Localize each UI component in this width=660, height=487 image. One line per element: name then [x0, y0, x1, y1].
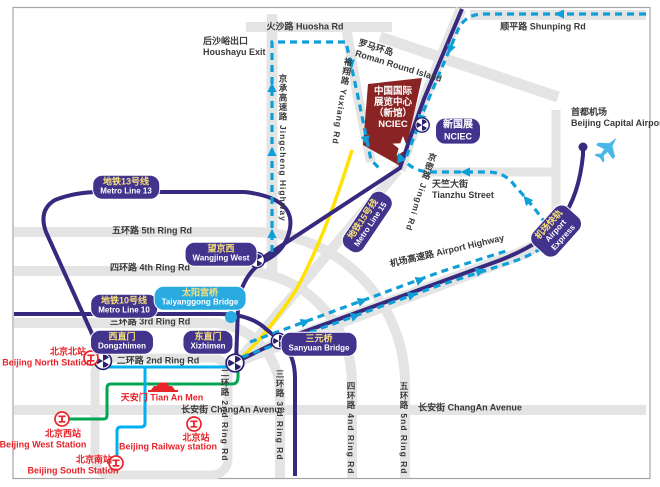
- railway-station-icon-west: [55, 412, 69, 426]
- capital-airport-en: Beijing Capital Airport: [571, 118, 660, 129]
- ring5-v-label: 五环路 5nd Ring Rd: [398, 382, 410, 475]
- venue-line1: 中国国际: [374, 86, 412, 97]
- nciec-station-zh: 新国展: [443, 120, 473, 132]
- ring2-v-label: 二环路 2nd Ring Rd: [219, 369, 231, 462]
- badge-metro-line-10: 地铁10号线 Metro Line 10: [90, 294, 158, 319]
- tiananmen-label: 天安门 Tian An Men: [121, 393, 204, 404]
- houshayu-exit-zh: 后沙峪出口: [203, 36, 266, 47]
- taiyanggong-en: Taiyanggong Bridge: [162, 298, 239, 307]
- ring3-v-label: 三环路 3rd Ring Rd: [274, 369, 286, 460]
- airplane-icon: [590, 131, 625, 166]
- dongzhimen-zh: 西直门: [98, 332, 146, 342]
- taiyanggong-zh: 太阳宫桥: [162, 288, 239, 298]
- tianzhu-street-label: 天竺大街 Tianzhu Street: [432, 179, 494, 201]
- airport-terminus-dot: [579, 143, 588, 152]
- capital-airport-label: 首都机场 Beijing Capital Airport: [571, 107, 660, 129]
- jingcheng-highway-label: 京承高速路 Jingcheng Highway: [277, 74, 289, 222]
- venue-line2: 展览中心: [374, 97, 412, 108]
- route-arrow-icon: [300, 316, 312, 328]
- wangjing-west-zh: 望京西: [193, 244, 250, 254]
- line10-en: Metro Line 10: [98, 306, 150, 315]
- ring2-h-label: 二环路 2nd Ring Rd: [117, 356, 200, 367]
- sanyuan-zh: 三元桥: [289, 334, 350, 344]
- huosha-rd-label: 火沙路 Huosha Rd: [266, 22, 343, 33]
- tianzhu-en: Tianzhu Street: [432, 190, 494, 201]
- changan-avenue-west-label: 长安街 ChangAn Avenue: [181, 405, 285, 416]
- badge-metro-line-13: 地铁13号线 Metro Line 13: [92, 175, 160, 200]
- ring5-h-label: 五环路 5th Ring Rd: [112, 226, 192, 237]
- wangjing-west-en: Wangjing West: [193, 254, 250, 263]
- badge-dongzhimen: 西直门 Dongzhimen: [90, 330, 154, 355]
- tianzhu-zh: 天竺大街: [432, 179, 494, 190]
- beijing-railway-en: Beijing Railway station: [119, 442, 217, 453]
- capital-airport-zh: 首都机场: [571, 107, 660, 118]
- beijing-south-zh: 北京南站: [76, 455, 112, 466]
- sanyuan-en: Sanyuan Bridge: [289, 344, 350, 353]
- badge-xizhimen: 东直门 Xizhimen: [182, 330, 233, 355]
- line13-zh: 地铁13号线: [100, 177, 152, 187]
- beijing-north-zh: 北京北站: [50, 347, 86, 358]
- badge-taiyanggong-bridge: 太阳宫桥 Taiyanggong Bridge: [154, 286, 247, 311]
- line13-en: Metro Line 13: [100, 187, 152, 196]
- beijing-north-en: Beijing North Station: [2, 358, 92, 369]
- xizhimen-zh: 东直门: [190, 332, 225, 342]
- badge-sanyuan-bridge: 三元桥 Sanyuan Bridge: [281, 332, 358, 357]
- railway-station-icon-beijing: [187, 417, 201, 431]
- ring4-h-label: 四环路 4th Ring Rd: [110, 263, 190, 274]
- houshayu-exit-en: Houshayu Exit: [203, 47, 266, 58]
- ring4-v-label: 四环路 4nd Ring Rd: [345, 382, 357, 475]
- beijing-west-en: Beijing West Station: [0, 440, 86, 451]
- venue-line4: NCIEC: [374, 119, 412, 130]
- interchange-station-icon-nciec: [415, 118, 430, 132]
- line10-zh: 地铁10号线: [98, 296, 150, 306]
- dongzhimen-en: Dongzhimen: [98, 342, 146, 351]
- houshayu-exit-label: 后沙峪出口 Houshayu Exit: [203, 36, 266, 58]
- nciec-station-en: NCIEC: [443, 131, 473, 141]
- beijing-south-en: Beijing South Station: [28, 466, 119, 477]
- changan-avenue-east-label: 长安街 ChangAn Avenue: [418, 403, 522, 414]
- badge-nciec-station: 新国展 NCIEC: [435, 118, 481, 145]
- beijing-west-zh: 北京西站: [45, 429, 81, 440]
- taiyanggong-bridge-dot: [225, 311, 237, 323]
- nciec-transport-map: 后沙峪出口 Houshayu Exit 火沙路 Huosha Rd 顺平路 Sh…: [0, 0, 660, 487]
- shunping-rd-label: 顺平路 Shunping Rd: [500, 22, 586, 33]
- nciec-venue-label: 中国国际 展览中心 （新馆） NCIEC: [374, 86, 412, 130]
- venue-line3: （新馆）: [374, 108, 412, 119]
- xizhimen-en: Xizhimen: [190, 342, 225, 351]
- badge-wangjing-west: 望京西 Wangjing West: [185, 242, 258, 267]
